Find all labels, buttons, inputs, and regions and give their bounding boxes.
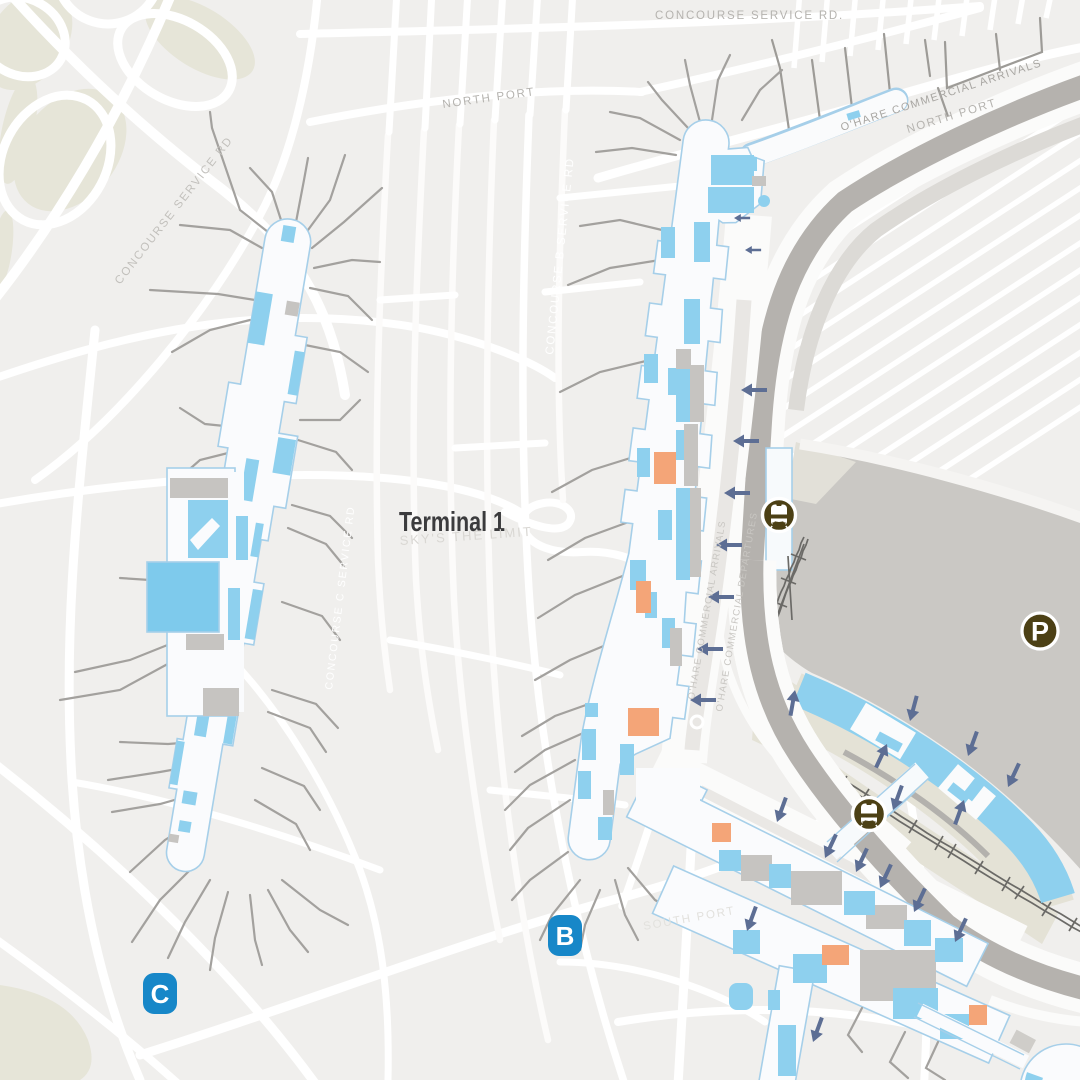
- svg-text:CONCOURSE SERVICE RD.: CONCOURSE SERVICE RD.: [655, 10, 844, 22]
- svg-text:C: C: [151, 979, 170, 1009]
- svg-text:P: P: [1031, 617, 1049, 647]
- svg-text:B: B: [556, 921, 575, 951]
